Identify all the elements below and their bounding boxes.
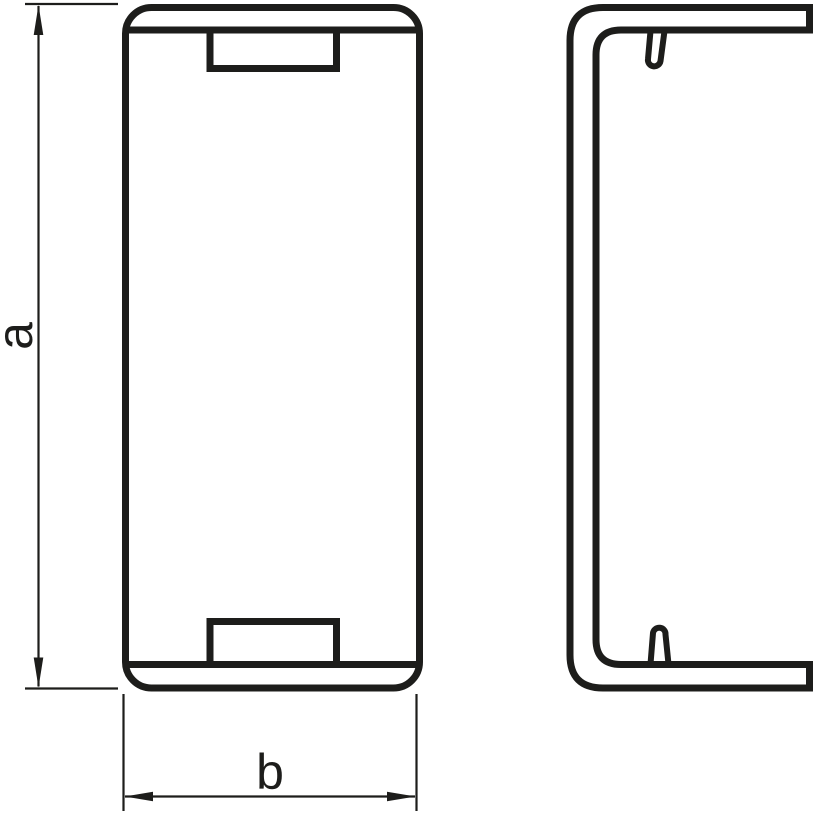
dimension-height: a <box>0 4 118 689</box>
dimension-width: b <box>124 694 417 811</box>
arrow-left-icon <box>125 792 154 802</box>
front-view-top-tab <box>210 30 337 69</box>
dimension-width-label: b <box>256 744 284 800</box>
front-view-outline <box>126 8 420 689</box>
technical-drawing: a b <box>0 0 817 813</box>
dimension-height-label: a <box>0 322 43 350</box>
technical-drawing-page: a b <box>0 0 817 813</box>
front-view-bottom-tab <box>210 622 337 665</box>
front-view <box>124 8 421 689</box>
side-view-profile <box>570 8 810 689</box>
arrow-up-icon <box>34 5 44 35</box>
side-view-top-clip <box>648 31 665 66</box>
side-view <box>570 8 810 689</box>
arrow-down-icon <box>34 658 44 688</box>
side-view-bottom-clip <box>651 628 669 664</box>
arrow-right-icon <box>387 792 416 802</box>
